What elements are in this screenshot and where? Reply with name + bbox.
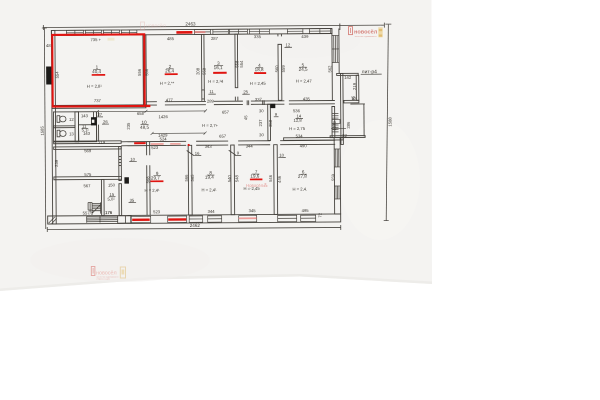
svg-text:72: 72 — [317, 212, 322, 217]
svg-text:560: 560 — [274, 65, 279, 73]
svg-text:235: 235 — [126, 122, 131, 130]
svg-text:540: 540 — [227, 175, 232, 183]
svg-text:48,5: 48,5 — [140, 125, 149, 130]
svg-text:658: 658 — [137, 111, 145, 116]
svg-text:30: 30 — [259, 108, 264, 113]
svg-text:150: 150 — [108, 183, 116, 188]
svg-text:554: 554 — [239, 60, 244, 68]
svg-text:495: 495 — [302, 208, 310, 213]
svg-text:82: 82 — [352, 97, 356, 101]
svg-text:26: 26 — [103, 119, 108, 124]
svg-text:289: 289 — [207, 99, 215, 104]
svg-text:27,8: 27,8 — [298, 174, 307, 179]
svg-text:и права на дом: и права на дом — [97, 279, 111, 281]
svg-text:5,0²: 5,0² — [108, 197, 116, 202]
svg-text:219: 219 — [352, 82, 357, 90]
svg-text:1588: 1588 — [387, 117, 392, 127]
svg-text:18,8: 18,8 — [255, 67, 264, 72]
svg-text:239: 239 — [54, 159, 59, 167]
svg-text:534: 534 — [296, 134, 304, 139]
svg-text:439: 439 — [301, 34, 309, 39]
svg-text:344: 344 — [246, 144, 254, 149]
svg-text:H = 2,4¹: H = 2,4¹ — [144, 188, 160, 193]
svg-text:546: 546 — [268, 174, 273, 182]
svg-text:H = 2,4.: H = 2,4. — [292, 186, 307, 191]
svg-text:48: 48 — [46, 43, 51, 48]
svg-text:358: 358 — [268, 119, 273, 127]
svg-text:H = 2,8¹: H = 2,8¹ — [87, 84, 103, 89]
svg-text:562: 562 — [327, 65, 332, 73]
svg-text:343: 343 — [205, 144, 213, 149]
svg-text:1229: 1229 — [332, 120, 337, 130]
svg-text:536: 536 — [293, 108, 301, 113]
svg-text:2462: 2462 — [190, 223, 201, 228]
svg-text:12,8: 12,8 — [293, 118, 302, 123]
svg-text:286: 286 — [346, 121, 351, 129]
svg-text:12: 12 — [285, 42, 290, 47]
svg-text:559: 559 — [331, 173, 336, 181]
svg-text:11: 11 — [209, 89, 214, 94]
svg-text:26,4: 26,4 — [165, 68, 174, 73]
svg-text:143: 143 — [81, 113, 89, 118]
svg-text:142: 142 — [344, 75, 352, 80]
svg-text:H = 2,4¹: H = 2,4¹ — [201, 187, 217, 192]
svg-text:523: 523 — [151, 145, 159, 150]
svg-text:Новосёл⁂: Новосёл⁂ — [246, 183, 267, 188]
svg-text:40,4: 40,4 — [92, 69, 101, 74]
svg-text:новосёл: новосёл — [96, 270, 117, 276]
svg-text:агентство недвижимости: агентство недвижимости — [355, 36, 377, 38]
svg-text:H = 2,75: H = 2,75 — [289, 126, 306, 131]
svg-text:32: 32 — [342, 133, 347, 138]
svg-text:575: 575 — [84, 172, 92, 177]
svg-text:568: 568 — [145, 176, 150, 184]
svg-text:новосёл: новосёл — [354, 29, 378, 35]
svg-text:237: 237 — [258, 119, 263, 127]
svg-text:523: 523 — [153, 209, 161, 214]
svg-text:565: 565 — [190, 174, 195, 182]
svg-text:27: 27 — [97, 112, 102, 117]
svg-text:16: 16 — [195, 151, 200, 156]
svg-text:435: 435 — [303, 96, 311, 101]
svg-text:13: 13 — [69, 131, 74, 136]
svg-text:H = 2,7+: H = 2,7+ — [202, 123, 219, 128]
svg-text:556: 556 — [137, 68, 142, 76]
svg-text:558: 558 — [202, 67, 207, 75]
svg-text:1585: 1585 — [40, 126, 45, 136]
svg-text:548: 548 — [234, 174, 239, 182]
svg-text:657: 657 — [219, 134, 227, 139]
svg-text:30: 30 — [259, 132, 264, 137]
svg-text:335: 335 — [254, 34, 262, 39]
svg-text:19,4: 19,4 — [205, 175, 214, 180]
svg-text:490: 490 — [300, 143, 308, 148]
svg-text:10: 10 — [279, 153, 284, 158]
svg-text:735 +: 735 + — [90, 37, 101, 42]
svg-text:345: 345 — [249, 208, 257, 213]
svg-text:1426: 1426 — [158, 114, 168, 119]
svg-text:446: 446 — [277, 175, 282, 183]
svg-text:35: 35 — [130, 198, 135, 203]
svg-text:19,6: 19,6 — [250, 174, 259, 179]
svg-text:2463: 2463 — [185, 21, 196, 26]
svg-text:657: 657 — [222, 110, 230, 115]
svg-text:524: 524 — [160, 136, 168, 141]
svg-text:143: 143 — [83, 131, 91, 136]
svg-text:569: 569 — [84, 148, 92, 153]
svg-text:559: 559 — [281, 65, 286, 73]
svg-text:556: 556 — [144, 68, 149, 76]
svg-text:H = 2,47: H = 2,47 — [296, 78, 313, 83]
svg-text:208: 208 — [195, 67, 200, 75]
svg-text:H = 2,**: H = 2,** — [160, 81, 175, 86]
svg-text:25: 25 — [243, 89, 248, 94]
svg-text:29,7: 29,7 — [151, 176, 160, 181]
svg-text:737: 737 — [94, 98, 102, 103]
svg-text:477: 477 — [166, 97, 174, 102]
svg-text:24,5: 24,5 — [299, 67, 308, 72]
svg-text:219: 219 — [98, 140, 106, 145]
svg-text:H = 2,¹4: H = 2,¹4 — [208, 79, 224, 84]
svg-text:567: 567 — [83, 183, 91, 188]
svg-text:287: 287 — [211, 36, 219, 41]
svg-text:566: 566 — [184, 174, 189, 182]
svg-text:45: 45 — [243, 115, 248, 120]
svg-text:176: 176 — [105, 210, 113, 215]
svg-text:12: 12 — [69, 117, 74, 122]
svg-text:337: 337 — [255, 97, 263, 102]
svg-text:10: 10 — [130, 157, 135, 162]
svg-text:554: 554 — [55, 71, 60, 79]
svg-text:485: 485 — [167, 36, 175, 41]
svg-text:344: 344 — [208, 209, 216, 214]
svg-text:новосёл: новосёл — [146, 24, 166, 30]
svg-text:16,1: 16,1 — [214, 65, 223, 70]
svg-text:H = 2,45: H = 2,45 — [250, 81, 267, 86]
svg-text:557/1: 557/1 — [83, 210, 94, 215]
